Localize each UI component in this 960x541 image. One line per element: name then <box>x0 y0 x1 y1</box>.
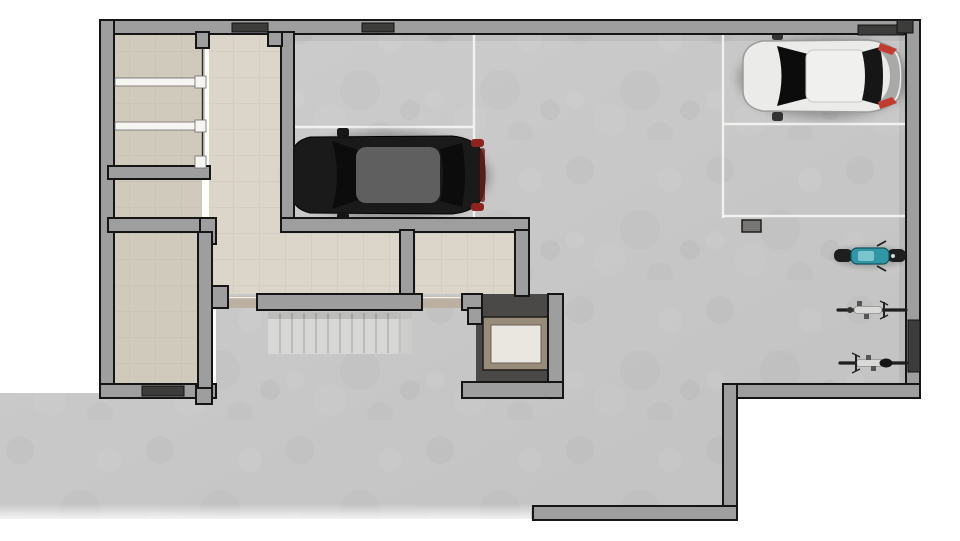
black-sedan-taillight-top <box>471 139 484 147</box>
white-car-mirror-bottom <box>772 112 783 121</box>
wall-left <box>100 20 114 398</box>
wall-ramp-east <box>723 384 737 514</box>
elevator-cab-floor <box>491 325 541 363</box>
black-sedan-rear-trim <box>480 148 485 202</box>
wall-elevator-right <box>548 294 563 384</box>
top-window-1 <box>232 23 268 32</box>
wall-ramp-south <box>533 506 737 520</box>
bicycle2-pedal-top <box>866 355 871 360</box>
floorplan-render: Basement garage floor plan — top-down 3D… <box>0 0 960 541</box>
staircase <box>268 312 412 354</box>
scooter-front-wheel <box>887 249 906 262</box>
wall-elevator-pier-step <box>468 308 482 324</box>
black-sedan-roof <box>356 147 440 203</box>
bicycle2-pedal-bottom <box>871 366 876 371</box>
stair-top-shadow <box>268 312 412 319</box>
wall-top <box>100 20 920 34</box>
scooter-headlight <box>891 254 895 258</box>
black-sedan-car <box>286 128 490 222</box>
wall-storage-large-right <box>198 232 212 388</box>
elevator <box>476 294 549 382</box>
right-wall-door <box>908 320 920 372</box>
shelf-rack-1-endcap <box>195 76 206 88</box>
floor-drain <box>742 220 761 232</box>
bicycle1-pedal-bottom <box>864 314 869 319</box>
white-hatchback-car <box>738 31 910 121</box>
scooter-seat <box>858 251 874 261</box>
white-car-roof <box>806 50 866 102</box>
white-car-windshield <box>777 46 808 106</box>
wall-divider-storage <box>108 218 204 232</box>
black-sedan-mirror-top <box>337 128 349 137</box>
black-sedan-taillight-bottom <box>471 203 484 211</box>
shelf-rack-3-endcap <box>195 156 206 168</box>
wall-garage-left <box>281 32 294 232</box>
top-window-2 <box>362 23 394 32</box>
bicycle1-pedal-top <box>857 301 862 306</box>
top-right-corner-block <box>897 20 913 33</box>
floor-plan-svg: Basement garage floor plan — top-down 3D… <box>0 0 960 541</box>
storage-large-tiles <box>114 232 198 384</box>
wall-shelfroom-jamb <box>196 32 209 48</box>
stair-landing-edge <box>398 312 412 354</box>
wall-lobby-right <box>515 230 529 296</box>
lobby-room-tiles <box>414 232 515 294</box>
storage-shelves-tiles <box>114 34 205 166</box>
wall-garage-left-nub <box>268 32 282 46</box>
bicycle1-frame <box>854 307 882 314</box>
storage-exterior-door <box>142 386 184 396</box>
wall-elevator-bottom <box>462 382 563 398</box>
apron-render-fade <box>0 504 531 521</box>
scooter-rear-wheel <box>834 249 853 262</box>
shelf-rack-2-endcap <box>195 120 206 132</box>
storage-small-tiles <box>114 179 202 218</box>
bicycle2-saddle <box>880 359 893 368</box>
wall-bottom-right <box>723 384 920 398</box>
wall-stair-long <box>257 294 422 310</box>
shelf-rack-2 <box>115 122 203 130</box>
black-sedan-rear-window <box>440 143 465 207</box>
bicycle1-saddle <box>847 307 853 313</box>
shelf-rack-1 <box>115 78 203 86</box>
white-car-rear-window <box>862 47 883 105</box>
wall-hall-lobby-divider <box>400 230 414 296</box>
wall-storage-large-jamb <box>212 286 228 308</box>
